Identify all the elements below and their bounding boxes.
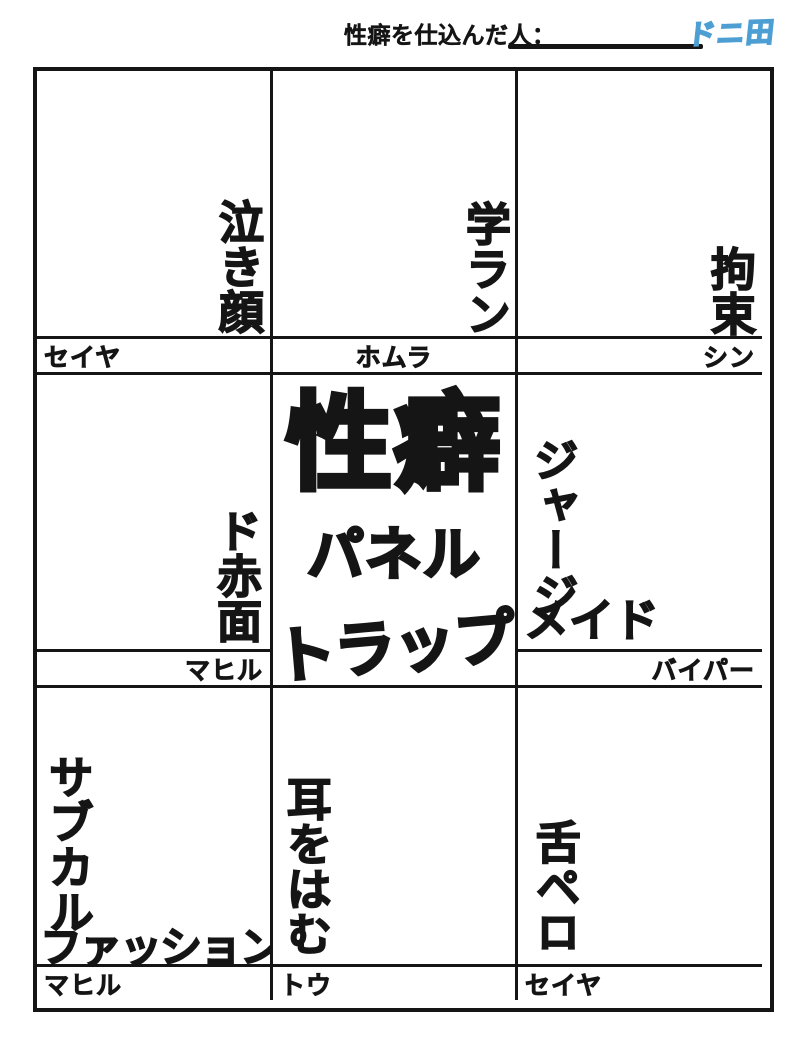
panel-label: 拘束 xyxy=(705,246,752,336)
player-name: シン xyxy=(518,336,762,372)
panel-grid: 泣き顔 セイヤ 学ラン ホムラ 拘束 シン ド赤面 マヒル 性癖 パネル トラッ… xyxy=(33,67,774,1012)
panel-content: 拘束 xyxy=(518,71,762,336)
game-title-line3: トラップ xyxy=(271,587,515,685)
panel-label-horizontal: ファッション xyxy=(40,926,270,970)
panel-label: 学ラン xyxy=(460,201,507,336)
panel-label-horizontal: メイド xyxy=(524,598,659,645)
logo: ドニ田 xyxy=(686,10,778,53)
panel-label: ド赤面 xyxy=(211,508,258,643)
panel-content: 泣き顔 xyxy=(37,71,270,336)
player-name: セイヤ xyxy=(37,336,270,372)
panel-label-vertical: サブカル xyxy=(43,754,90,934)
panel-content: 耳をはむ xyxy=(273,688,515,964)
panel-top-left[interactable]: 泣き顔 セイヤ xyxy=(37,71,270,372)
panel-label: 耳をはむ xyxy=(281,776,328,956)
panel-content: ド赤面 xyxy=(37,375,270,649)
panel-label: 舌ペロ xyxy=(530,819,577,954)
panel-content: 学ラン xyxy=(273,71,515,336)
panel-bottom-center[interactable]: 耳をはむ トウ xyxy=(270,685,515,1000)
panel-label-vertical: ジャージ xyxy=(528,437,575,617)
panel-middle-left[interactable]: ド赤面 マヒル xyxy=(37,372,270,685)
panel-top-right[interactable]: 拘束 シン xyxy=(515,71,762,372)
panel-bottom-left[interactable]: サブカル ファッション マヒル xyxy=(37,685,270,1000)
game-title-line1: 性癖 xyxy=(286,393,502,497)
name-entry-line[interactable] xyxy=(508,44,703,49)
panel-bottom-right[interactable]: 舌ペロ セイヤ xyxy=(515,685,762,1000)
player-name: バイパー xyxy=(518,649,762,685)
panel-top-center[interactable]: 学ラン ホムラ xyxy=(270,71,515,372)
panel-label: 泣き顔 xyxy=(213,199,260,334)
player-name: セイヤ xyxy=(518,964,762,1000)
player-name: マヒル xyxy=(37,649,270,685)
player-name: トウ xyxy=(273,964,515,1000)
panel-middle-right[interactable]: ジャージ メイド バイパー xyxy=(515,372,762,685)
panel-content: 舌ペロ xyxy=(518,688,762,964)
panel-content: サブカル ファッション xyxy=(37,688,270,964)
center-title-panel: 性癖 パネル トラップ xyxy=(270,372,515,685)
game-title-line2: パネル xyxy=(307,509,481,591)
player-name: ホムラ xyxy=(273,336,515,372)
panel-content: ジャージ メイド xyxy=(518,375,762,649)
